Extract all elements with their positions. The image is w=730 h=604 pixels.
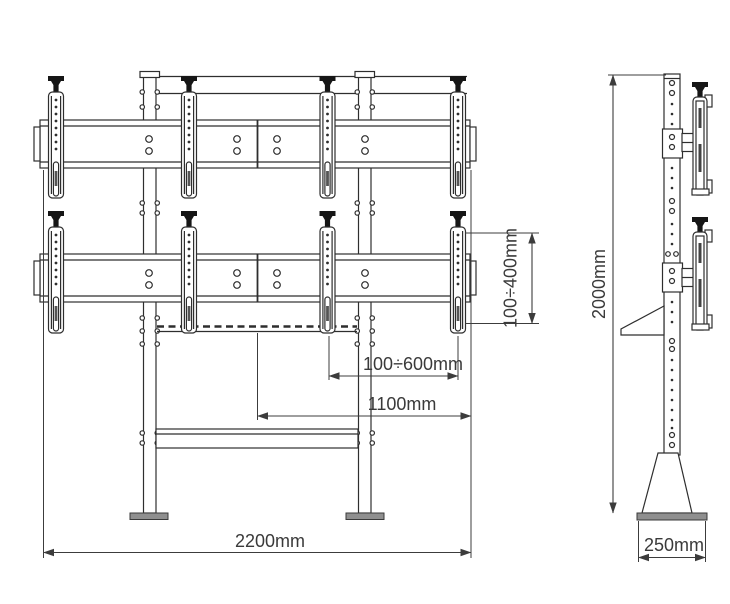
dimension-base-depth: 250mm bbox=[639, 521, 706, 562]
dimension-bracket-spacing: 100÷600mm bbox=[329, 336, 463, 380]
label-bracket-spacing: 100÷600mm bbox=[363, 354, 463, 374]
mounting-rail-row-2 bbox=[34, 254, 476, 302]
tv-stand-dimension-drawing: 2200mm 1100mm 100÷600mm 100÷400mm 2000mm… bbox=[0, 0, 730, 604]
front-view bbox=[34, 72, 476, 520]
tv-bracket-strip-side-top bbox=[692, 82, 712, 195]
label-total-width: 2200mm bbox=[235, 531, 305, 551]
label-total-height: 2000mm bbox=[589, 249, 609, 319]
mounting-rail-row-1 bbox=[34, 120, 476, 168]
front-left-foot bbox=[130, 513, 168, 520]
dimension-total-height: 2000mm bbox=[589, 75, 666, 513]
front-right-foot bbox=[346, 513, 384, 520]
side-hinge-plate-top bbox=[663, 129, 683, 158]
label-bracket-height: 100÷400mm bbox=[501, 228, 521, 328]
side-view bbox=[621, 74, 712, 520]
side-foot bbox=[637, 513, 707, 520]
side-base-taper bbox=[642, 453, 692, 513]
tv-bracket-strip-side-bottom bbox=[692, 217, 712, 330]
label-half-width: 1100mm bbox=[368, 394, 437, 414]
front-shelf bbox=[156, 429, 358, 448]
shelf-support-bracket bbox=[621, 306, 664, 335]
technical-drawing-canvas: 2200mm 1100mm 100÷600mm 100÷400mm 2000mm… bbox=[0, 0, 730, 604]
side-hinge-plate-bottom bbox=[663, 263, 683, 292]
label-base-depth: 250mm bbox=[644, 535, 704, 555]
